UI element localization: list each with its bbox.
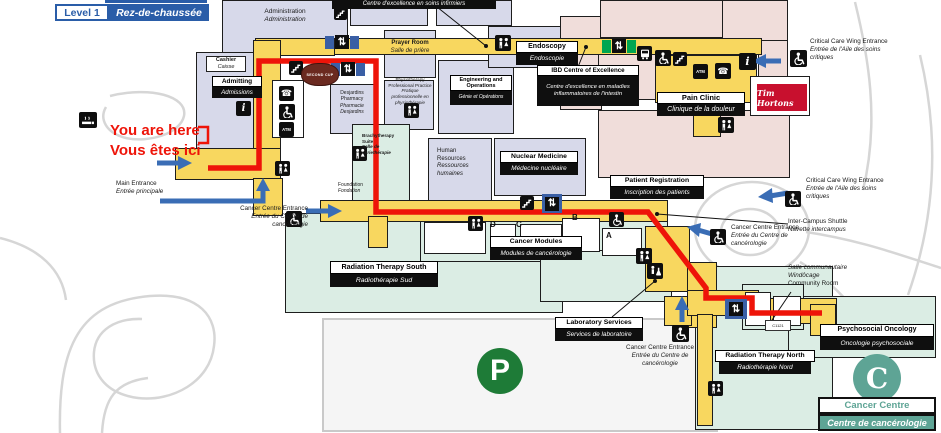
prayer-room-fr: Salle de prière — [388, 48, 432, 56]
administration-label: Administration Administration — [235, 8, 335, 24]
pointer-line-shuttle — [657, 214, 788, 224]
road — [806, 232, 941, 268]
critical-care-top-label: Critical Care Wing Entrance Entrée de l'… — [810, 38, 902, 62]
brachytherapy-fr: Salle de curiethérapie — [362, 144, 404, 155]
cancer-modules-label-en: Cancer Modules — [490, 236, 582, 248]
human-resources-label: Human Resources Ressources humaines — [437, 148, 483, 178]
wheelchair-icon — [710, 229, 726, 245]
foundation-label: Foundation Fondation — [338, 182, 382, 195]
cancer-centre-logo-circle: C — [853, 354, 901, 402]
desjardins-pharmacy-label: Desjardins Pharmacy Pharmacie Desjardins — [330, 90, 374, 115]
phone-icon: ☎ — [279, 86, 294, 101]
patient-registration-label-fr: Inscription des patients — [610, 187, 704, 199]
physiotherapy-label: Physiotherapy Professional Practice Prat… — [387, 77, 433, 106]
shuttle-stop-icon — [637, 46, 652, 61]
washroom-icon — [718, 117, 734, 133]
prayer-room-label: Prayer Room Salle de prière — [388, 40, 432, 55]
patient-registration-label-en: Patient Registration — [610, 175, 704, 187]
cancer-entrance-right-en: Cancer Centre Entrance — [731, 224, 803, 232]
endoscopy-label-en: Endoscopy — [516, 41, 578, 53]
cashier-en: Cashier — [207, 57, 245, 64]
administration-en: Administration — [235, 8, 335, 16]
endoscopy-label-fr: Endoscopie — [516, 53, 578, 65]
road — [908, 55, 932, 295]
elevator-car-icon: ⇅ — [341, 62, 355, 76]
radiation-south-label-fr: Radiothérapie Sud — [330, 274, 438, 287]
road — [855, 2, 871, 190]
elevator-car-icon: ⇅ — [729, 302, 743, 316]
engineering-label-en: Engineering and Operations — [450, 75, 512, 91]
you-are-here-fr: Vous êtes ici — [110, 141, 220, 161]
laboratory-icon — [647, 263, 663, 279]
header-top-sliver — [105, 0, 207, 3]
cashier-fr: Caisse — [207, 64, 245, 71]
module-letter-a: A — [606, 231, 612, 240]
laboratory-label-fr: Services de laboratoire — [555, 329, 643, 341]
wheelchair-icon — [790, 50, 807, 67]
module-letter-c: C — [516, 220, 522, 229]
admitting-label-en: Admitting — [212, 76, 262, 87]
cancer-centre-logo-en: Cancer Centre — [818, 397, 936, 414]
second-cup-logo: SECOND CUP — [301, 63, 339, 86]
elevator-door — [356, 63, 365, 76]
admitting-label-fr: Admissions — [212, 87, 262, 98]
level-label-en: Level 1 — [55, 4, 109, 21]
nursing-excellence-label: Centre d'excellence en soins infirmiers — [332, 0, 496, 9]
main-entrance-en: Main Entrance — [116, 180, 190, 188]
ibd-label-en: IBD Centre of Excellence — [537, 65, 639, 76]
administration-fr: Administration — [235, 16, 335, 24]
cancer-modules-label-fr: Modules de cancérologie — [490, 248, 582, 260]
elevator-door — [627, 40, 636, 53]
prayer-room-en: Prayer Room — [388, 40, 432, 48]
washroom-icon — [468, 216, 483, 231]
desjardins-en: Desjardins Pharmacy — [330, 90, 374, 103]
radiation-south-label-en: Radiation Therapy South — [330, 261, 438, 274]
foundation-stub — [368, 216, 388, 248]
pain-clinic-label-en: Pain Clinic — [657, 92, 745, 104]
atm-icon: ATM — [279, 122, 294, 137]
critical-care-right-label: Critical Care Wing Entrance Entrée de l'… — [806, 177, 896, 201]
room-number-label: C1121 — [765, 320, 791, 331]
cancer-entrance-left-label: Cancer Centre Entrance Entrée du Centre … — [228, 205, 308, 229]
smoking-area-icon — [79, 112, 97, 128]
critical-care-right-en: Critical Care Wing Entrance — [806, 177, 896, 185]
psychosocial-label-en: Psychosocial Oncology — [820, 324, 934, 337]
elevator-car-icon: ⇅ — [545, 197, 559, 211]
washroom-icon — [275, 161, 290, 176]
human-resources-fr: Ressources humaines — [437, 163, 483, 178]
washroom-icon — [708, 381, 723, 396]
wheelchair-escort-icon — [609, 212, 624, 227]
cancer-entrance-left-en: Cancer Centre Entrance — [228, 205, 308, 213]
parking-symbol: P — [477, 348, 523, 394]
elevator-car-icon: ⇅ — [612, 39, 626, 53]
foundation-fr: Fondation — [338, 188, 382, 194]
cancer-entrance-left-fr: Entrée du Centre de cancérologie — [228, 213, 308, 229]
critical-care-right-fr: Entrée de l'Aile des soins critiques — [806, 185, 896, 201]
ibd-label-fr: Centre d'excellence en maladies inflamma… — [537, 76, 639, 106]
wheelchair-icon — [785, 191, 801, 207]
elevator-bank-icon: ⇅ — [325, 35, 359, 49]
elevator-bank-green-icon: ⇅ — [602, 39, 636, 53]
wheelchair-icon — [672, 325, 689, 342]
community-room-name: Windôcage — [788, 272, 884, 280]
you-are-here-en: You are here — [110, 121, 220, 141]
cancer-entrance-bottom-label: Cancer Centre Entrance Entrée du Centre … — [616, 344, 704, 368]
elevator-icon: ⇅ — [542, 194, 562, 213]
corridor-north-block — [697, 314, 713, 426]
community-room-fr: Salle communautaire — [788, 264, 884, 272]
main-entrance-fr: Entrée principale — [116, 188, 190, 196]
you-are-here-label: You are here Vous êtes ici — [110, 121, 220, 160]
pain-clinic-label-fr: Clinique de la douleur — [657, 104, 745, 116]
module-letter-d: D — [490, 220, 496, 229]
stairs-icon — [520, 196, 534, 210]
cancer-entrance-bottom-en: Cancer Centre Entrance — [616, 344, 704, 352]
hospital-wayfinding-map: i ☎ ATM ⇅ ⇅ ⇅ ⇅ — [0, 0, 941, 433]
info-icon: i — [236, 101, 251, 116]
nuclear-medicine-label-fr: Médecine nucléaire — [500, 163, 578, 175]
elevator-door — [602, 40, 611, 53]
wheelchair-escort-icon — [279, 104, 295, 120]
elevator-icon: ⇅ — [725, 299, 747, 319]
community-room-label: Salle communautaire Windôcage Community … — [788, 264, 884, 288]
cancer-entrance-right-label: Cancer Centre Entrance Entrée du Centre … — [731, 224, 803, 248]
phone-icon: ☎ — [715, 63, 731, 79]
brachytherapy-en: Brachytherapy Suite — [362, 133, 404, 144]
nuclear-medicine-label-en: Nuclear Medicine — [500, 151, 578, 163]
human-resources-en: Human Resources — [437, 148, 483, 163]
wheelchair-escort-icon — [655, 50, 671, 66]
main-entrance-label: Main Entrance Entrée principale — [116, 180, 190, 196]
module-letter-b: B — [572, 213, 578, 222]
laboratory-label-en: Laboratory Services — [555, 317, 643, 329]
engineering-label-fr: Génie et Opérations — [450, 91, 512, 105]
radiation-north-label-en: Radiation Therapy North — [715, 350, 815, 362]
desjardins-fr: Pharmacie Desjardins — [330, 103, 374, 116]
psychosocial-label-fr: Oncologie psychosociale — [820, 337, 934, 350]
info-icon: i — [739, 53, 756, 70]
cancer-entrance-bottom-fr: Entrée du Centre de cancérologie — [616, 352, 704, 368]
road — [0, 238, 66, 300]
brachytherapy-label: Brachytherapy Suite Salle de curiethérap… — [362, 133, 404, 156]
road — [102, 378, 148, 433]
level-label-fr: Rez-de-chaussée — [109, 4, 209, 21]
cashier-label: Cashier Caisse — [206, 56, 246, 72]
washroom-icon — [495, 35, 511, 51]
community-room-en: Community Room — [788, 280, 884, 288]
elevator-door — [350, 36, 359, 49]
tim-hortons-logo: Tim Hortons — [757, 84, 807, 111]
washroom-icon — [636, 248, 652, 264]
cancer-entrance-right-fr: Entrée du Centre de cancérologie — [731, 232, 803, 248]
road — [60, 296, 215, 433]
critical-care-top-en: Critical Care Wing Entrance — [810, 38, 902, 46]
critical-care-right-arrowhead — [758, 188, 773, 203]
elevator-door — [325, 36, 334, 49]
physiotherapy-en: Physiotherapy Professional Practice — [387, 77, 433, 88]
physiotherapy-fr: Pratique professionnelle en physiothérap… — [387, 88, 433, 105]
elevator-car-icon: ⇅ — [335, 35, 349, 49]
stairs-icon — [673, 52, 687, 66]
radiation-north-label-fr: Radiothérapie Nord — [719, 362, 811, 374]
critical-care-top-fr: Entrée de l'Aile des soins critiques — [810, 46, 902, 62]
cancer-centre-logo-fr: Centre de cancérologie — [818, 414, 936, 431]
atm-icon: ATM — [693, 64, 708, 79]
